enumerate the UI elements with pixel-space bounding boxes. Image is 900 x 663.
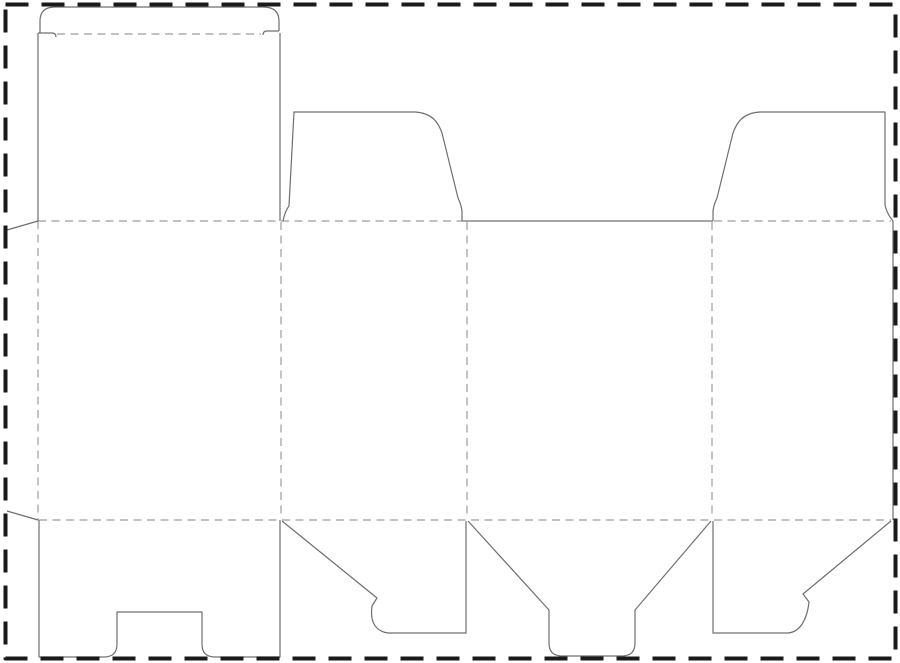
cut-lines-group bbox=[7, 7, 893, 657]
bottom-tongue-flap bbox=[468, 521, 711, 656]
top-dust-flap-right bbox=[713, 112, 893, 221]
tuck-shoulder-right bbox=[263, 31, 279, 35]
fold-lines-group bbox=[38, 34, 891, 520]
glue-flap-top-edge bbox=[7, 221, 38, 230]
top-dust-flap-left bbox=[283, 112, 462, 221]
bottom-flap-left bbox=[282, 521, 466, 633]
tuck-flap-outline bbox=[40, 7, 279, 33]
dieline-page bbox=[0, 0, 900, 663]
tuck-shoulder-left bbox=[38, 33, 56, 37]
glue-flap-bottom-edge bbox=[7, 511, 38, 520]
bottom-lock-panel bbox=[39, 520, 280, 657]
bottom-flap-right bbox=[713, 521, 891, 633]
dieline-svg bbox=[0, 0, 900, 663]
page-border bbox=[6, 5, 896, 659]
